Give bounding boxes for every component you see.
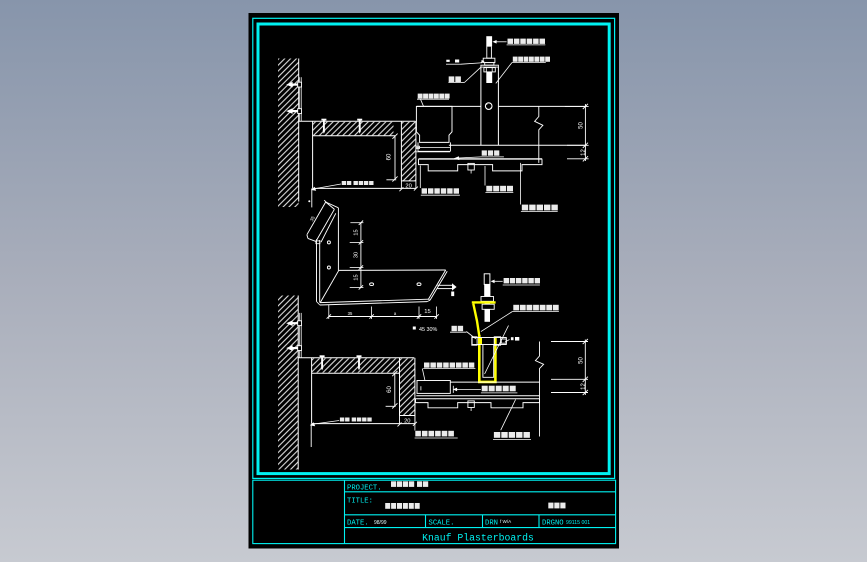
svg-text:12: 12 xyxy=(581,149,587,156)
svg-text:15: 15 xyxy=(354,229,360,235)
svg-text:45 30%: 45 30% xyxy=(419,327,437,333)
svg-text:60: 60 xyxy=(387,153,393,160)
svg-text:DRGNO: DRGNO xyxy=(542,520,564,528)
svg-text:Knauf Plasterboards: Knauf Plasterboards xyxy=(422,532,534,543)
svg-text:DATE.: DATE. xyxy=(347,520,369,528)
svg-text:15: 15 xyxy=(354,274,360,280)
svg-text:60: 60 xyxy=(387,386,393,393)
svg-text:99115 001: 99115 001 xyxy=(566,520,590,526)
svg-text:12: 12 xyxy=(581,383,587,390)
svg-text:f W/A: f W/A xyxy=(500,519,512,524)
svg-text:DRN: DRN xyxy=(485,520,498,528)
svg-text:15: 15 xyxy=(424,309,430,315)
svg-text:SCALE.: SCALE. xyxy=(429,520,455,528)
svg-text:TITLE:: TITLE: xyxy=(347,498,373,506)
svg-text:30: 30 xyxy=(354,252,360,258)
svg-text:35: 35 xyxy=(348,311,353,316)
svg-text:PROJECT.: PROJECT. xyxy=(347,484,382,492)
svg-text:50: 50 xyxy=(578,357,584,364)
svg-text:50: 50 xyxy=(578,122,584,129)
svg-text:98/99: 98/99 xyxy=(374,520,387,526)
